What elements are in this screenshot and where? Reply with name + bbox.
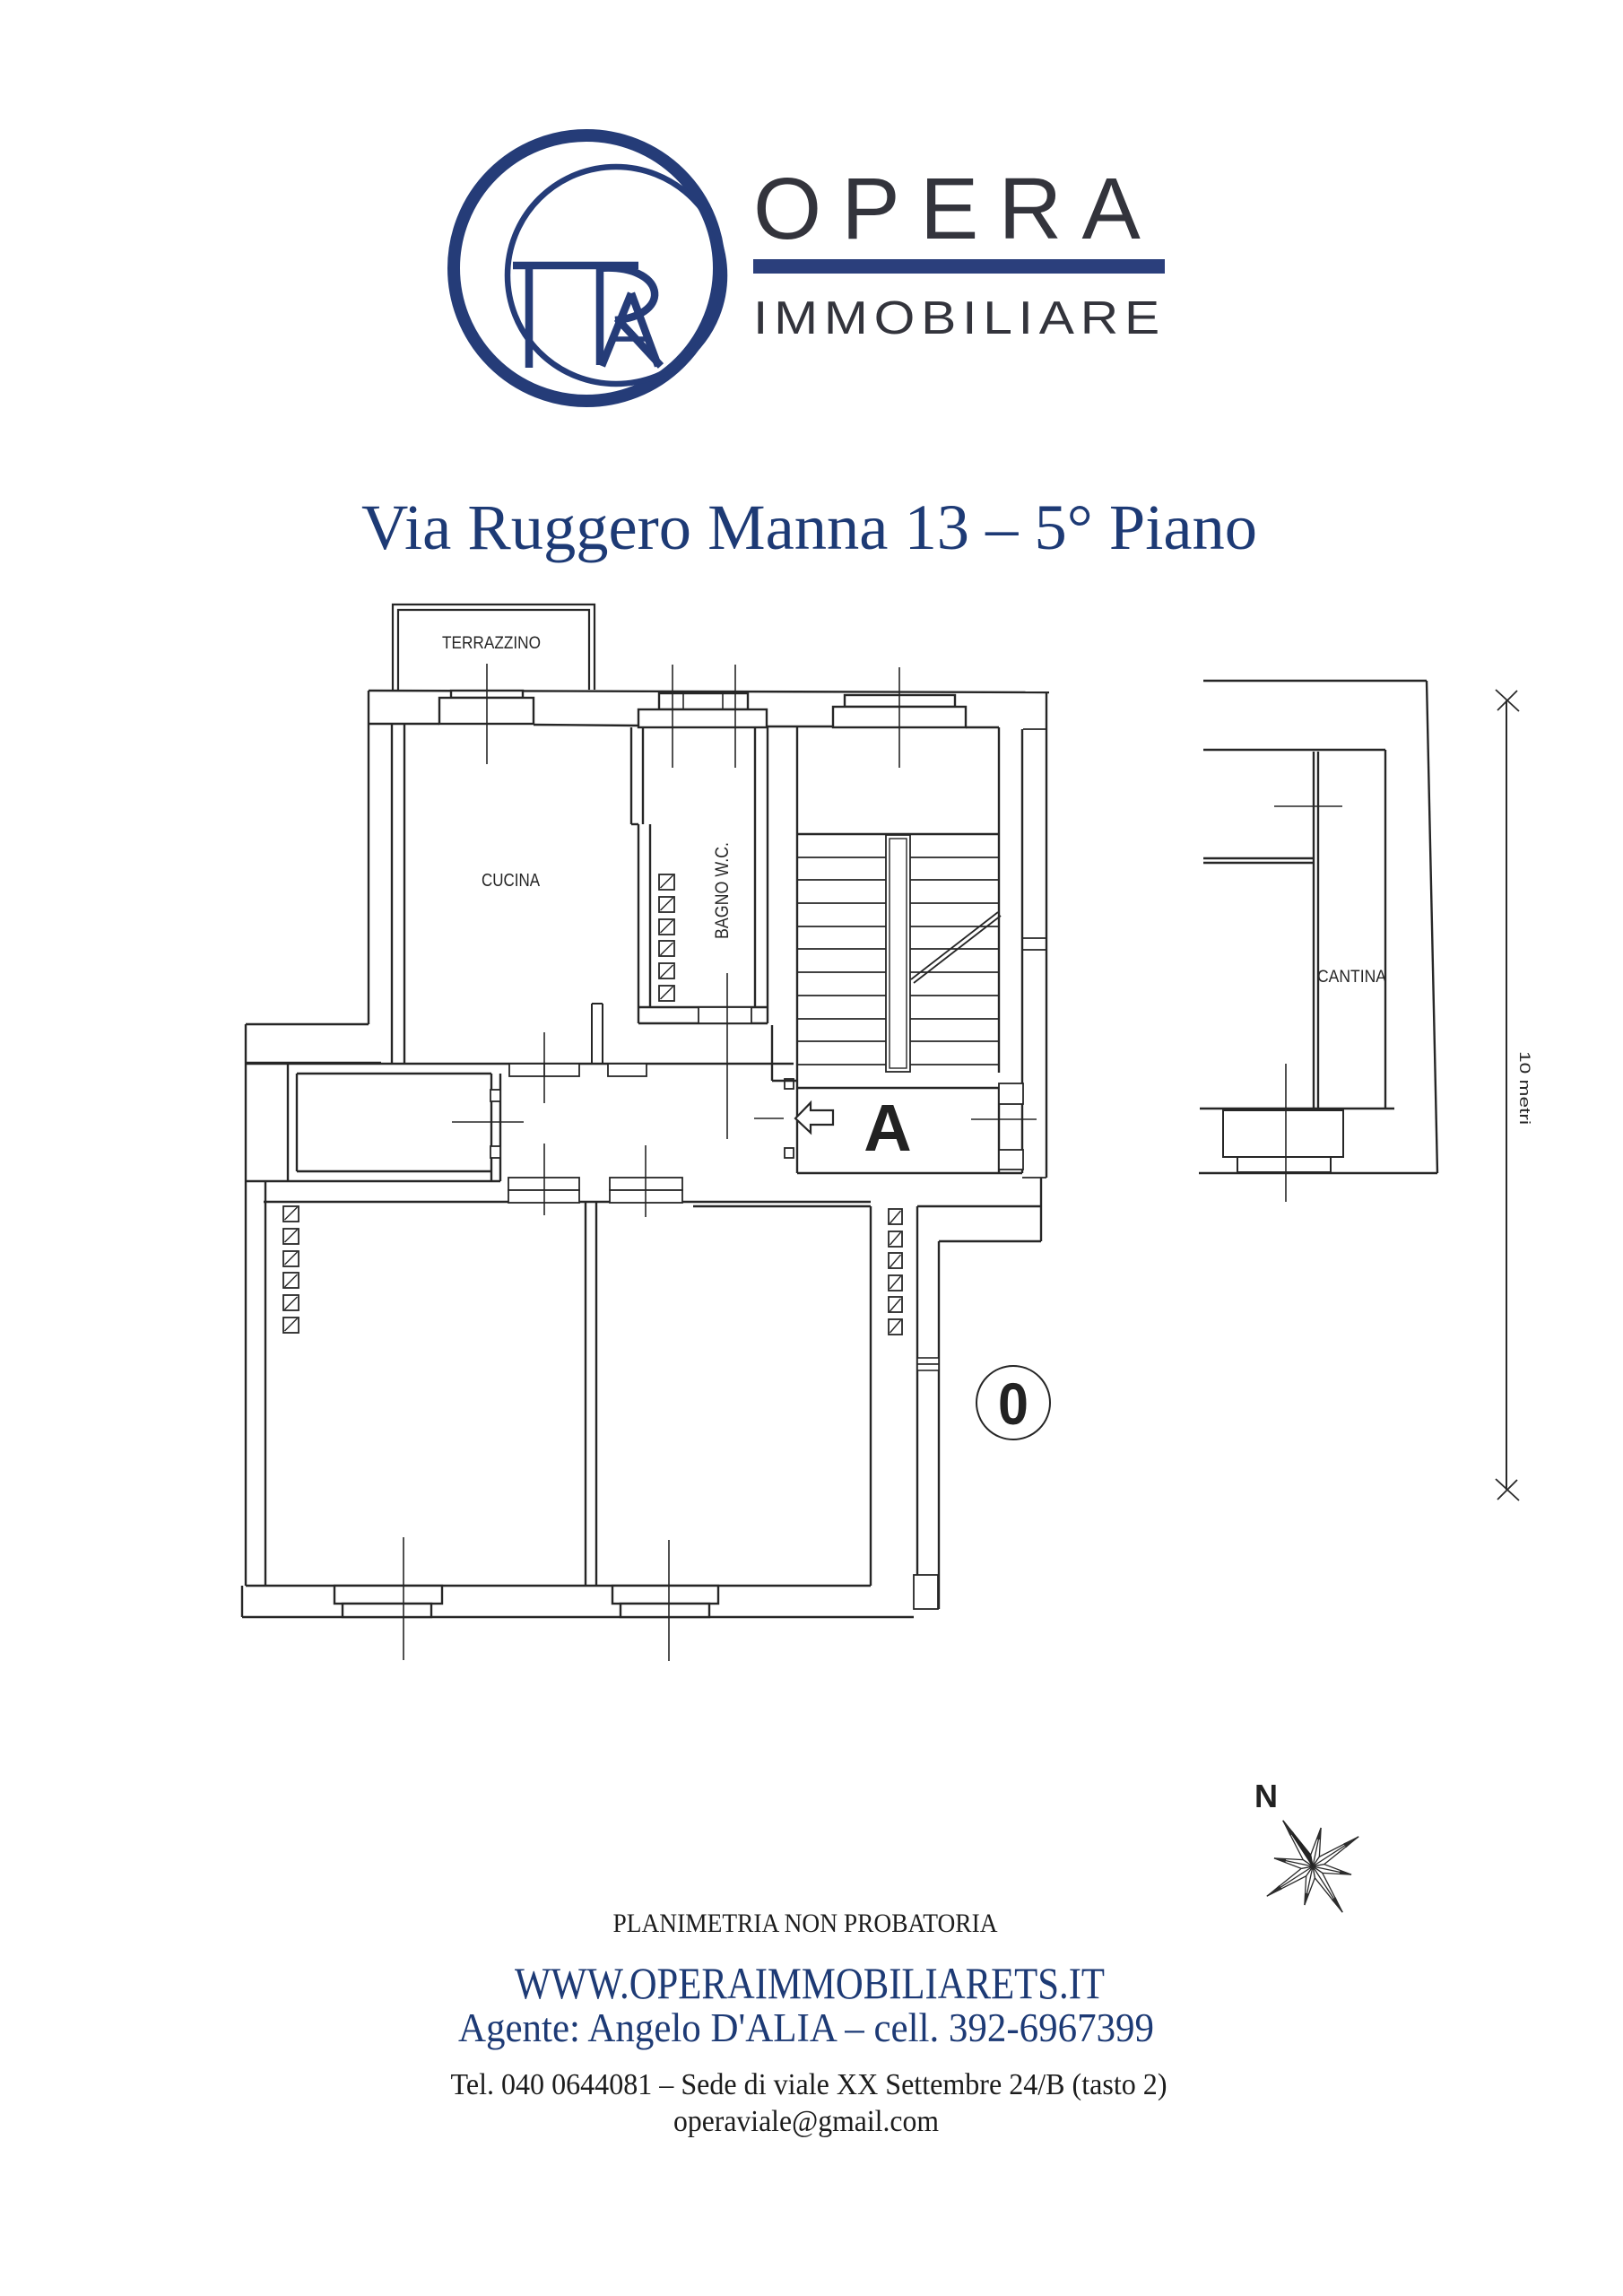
svg-text:WWW.OPERAIMMOBILIARETS.IT: WWW.OPERAIMMOBILIARETS.IT: [515, 1958, 1105, 2008]
svg-text:IMMOBILIARE: IMMOBILIARE: [753, 292, 1166, 344]
svg-text:OPERA: OPERA: [753, 160, 1160, 257]
svg-text:Agente: Angelo D'ALIA – cell.: Agente: Angelo D'ALIA – cell. 392-696739…: [458, 2005, 1154, 2050]
svg-text:BAGNO W.C.: BAGNO W.C.: [712, 842, 733, 939]
svg-text:10 metri: 10 metri: [1516, 1051, 1533, 1125]
svg-text:Via Ruggero Manna 13 – 5° Pian: Via Ruggero Manna 13 – 5° Piano: [361, 491, 1257, 563]
svg-text:A: A: [864, 1091, 911, 1165]
svg-text:PLANIMETRIA NON PROBATORIA: PLANIMETRIA NON PROBATORIA: [613, 1909, 998, 1938]
svg-text:0: 0: [998, 1370, 1028, 1437]
svg-text:CANTINA: CANTINA: [1317, 968, 1386, 987]
svg-text:operaviale@gmail.com: operaviale@gmail.com: [673, 2105, 939, 2138]
svg-text:CUCINA: CUCINA: [482, 871, 541, 891]
svg-text:TERRAZZINO: TERRAZZINO: [442, 634, 541, 653]
svg-text:Tel. 040 0644081 – Sede di via: Tel. 040 0644081 – Sede di viale XX Sett…: [451, 2068, 1167, 2101]
svg-text:N: N: [1254, 1778, 1278, 1814]
